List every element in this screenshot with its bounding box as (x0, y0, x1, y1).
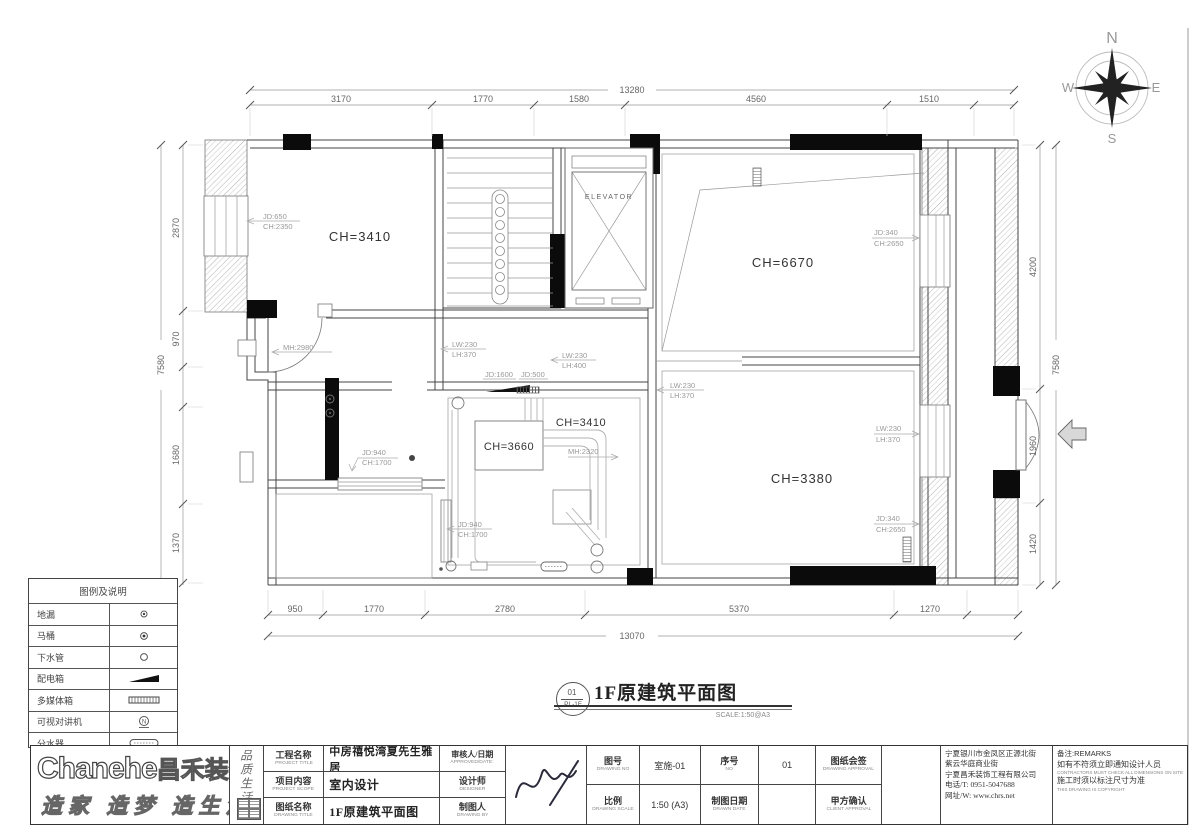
scale-label-en: DRAWING SCALE (592, 807, 633, 812)
legend-label: 多媒体箱 (29, 690, 110, 711)
seq-label-en: NO (726, 767, 733, 772)
title-rule (554, 705, 792, 707)
drain-pipe-icon (452, 397, 464, 409)
elevator-shaft: ELEVATOR (565, 148, 653, 308)
designer-signature (506, 755, 586, 815)
floor-drain-icon (409, 455, 415, 461)
signature-cell (506, 746, 587, 824)
scope-value: 室内设计 (329, 776, 379, 793)
approved-label-en: APPROVED/DATE: (451, 760, 494, 765)
legend-label: 地漏 (29, 604, 110, 625)
legend-row: 地漏 (29, 604, 177, 626)
drain-pipe-icon (591, 561, 603, 573)
power-box-icon (110, 669, 177, 690)
legend-panel: 图例及说明 地漏 马桶 下水管 配电箱 多媒体箱 可视对讲机 N 分水器 (28, 578, 178, 748)
dim-chain-bottom: 950 1770 2780 5370 1270 13070 (264, 604, 1022, 641)
dim: 3170 (331, 94, 351, 104)
window-toilet (338, 478, 422, 490)
project-label: 工程名称 (276, 751, 312, 761)
sheet-title: 01 PL-1F 1F原建筑平面图 SCALE:1:50@A3 (548, 676, 798, 722)
beam-note: LH:370 (876, 435, 900, 444)
wall-box (471, 562, 487, 570)
company-address1: 宁夏银川市金凤区正源北街 (945, 749, 1036, 759)
floor-drain-icon (439, 567, 443, 571)
drawing-title-value: 1F原建筑平面图 (329, 803, 418, 820)
remarks-title: 备注:REMARKS (1057, 749, 1111, 760)
remarks-line2: 施工时须以标注尺寸为准 (1057, 776, 1145, 786)
scope-label: 项目内容 (276, 777, 312, 787)
brand-slogan: 造家 造梦 造生活 (41, 790, 230, 820)
legend-row: 马桶 (29, 626, 177, 648)
dim: 2870 (171, 218, 181, 238)
dim: 1510 (919, 94, 939, 104)
company-info: 宁夏银川市金凤区正源北街 紫云华庭商业街 宁夏昌禾装饰工程有限公司 电话/T: … (941, 746, 1053, 824)
mh-note: MH:2320 (568, 447, 598, 456)
compass-icon: N S W E (1062, 30, 1161, 146)
window-note: JD:940 (458, 520, 482, 529)
dim: 1960 (1028, 436, 1038, 456)
brand-wordmark: Chanehe昌禾装饰 (37, 750, 230, 786)
window-note: CH:2650 (876, 525, 906, 534)
dim: 1270 (920, 604, 940, 614)
dim: 5370 (729, 604, 749, 614)
beam-note: LW:230 (562, 351, 587, 360)
project-value: 中房禧悦湾夏先生雅居 (329, 746, 438, 772)
window-right-top (920, 215, 950, 287)
legend-row: 配电箱 (29, 669, 177, 691)
dim-chain-top: 13280 3170 1770 1580 4560 1510 (246, 85, 1018, 109)
window-note: JD:940 (362, 448, 386, 457)
room-label: CH=6670 (752, 255, 814, 270)
compass-w-label: W (1062, 80, 1075, 95)
dim-chain-right: 4200 1960 1420 7580 (1028, 141, 1061, 589)
drawing-number-badge: 01 PL-1F (556, 682, 590, 716)
company-website: 网址/W: www.chrs.net (945, 791, 1015, 801)
legend-label: 可视对讲机 (29, 712, 110, 733)
date-value-empty (759, 785, 815, 824)
badge-number: 01 (561, 689, 583, 700)
drawing-title-label-en: DRAWING TITLE (274, 813, 313, 818)
media-box-icon (110, 690, 177, 711)
window-bath (441, 500, 451, 562)
dim-total: 7580 (156, 355, 166, 375)
staircase (447, 158, 553, 306)
remarks-line1: 如有不符须立即通知设计人员 (1057, 760, 1161, 770)
beam-note: LW:230 (876, 424, 901, 433)
beam-note: LH:370 (670, 391, 694, 400)
designer-label-en: DESIGNER (459, 787, 485, 792)
window-note: JD:340 (876, 514, 900, 523)
sheet-title-text: 1F原建筑平面图 (594, 678, 737, 705)
scale-label: 比例 (604, 797, 622, 807)
legend-row: 下水管 (29, 647, 177, 669)
seq-values-col: 01 (759, 746, 816, 824)
dim-total: 13280 (619, 85, 644, 95)
room-label: CH=3410 (556, 417, 606, 429)
room-label: CH=3410 (329, 229, 391, 244)
legend-row: 多媒体箱 (29, 690, 177, 712)
beam-note: LW:230 (452, 340, 477, 349)
company-name: 宁夏昌禾装饰工程有限公司 (945, 770, 1036, 780)
legend-label: 配电箱 (29, 669, 110, 690)
room-label: CH=3660 (484, 441, 534, 453)
compass-e-label: E (1152, 80, 1161, 95)
entry-arrow-icon (1058, 420, 1086, 448)
drafter-label-en: DRAWING BY (456, 813, 488, 818)
legend-title: 图例及说明 (29, 579, 177, 604)
dim: 2780 (495, 604, 515, 614)
company-logo: Chanehe昌禾装饰 造家 造梦 造生活 (31, 746, 230, 824)
dim: 1680 (171, 445, 181, 465)
legend-label: 马桶 (29, 626, 110, 647)
beam-note: LW:230 (670, 381, 695, 390)
window-note: JD:340 (874, 228, 898, 237)
dim: 4560 (746, 94, 766, 104)
drawing-sheet: ELEVATOR CH (0, 0, 1200, 833)
window-note: CH:1700 (362, 458, 392, 467)
dim-chain-left: 2870 970 1680 1370 7580 (156, 141, 187, 587)
dno-labels-col: 图号DRAWING NO 比例DRAWING SCALE (587, 746, 640, 824)
window-note: JD:650 (263, 212, 287, 221)
approval-blank-col (882, 746, 941, 824)
media-box-icon (753, 168, 761, 186)
remarks-line2-en: THIS DRAWING IS COPYRIGHT (1057, 787, 1125, 793)
seq-labels-col: 序号NO 制图日期DRAWN DATE (701, 746, 760, 824)
elevator-label: ELEVATOR (585, 194, 633, 201)
window-note: CH:1700 (458, 530, 488, 539)
compass-n-label: N (1106, 30, 1118, 47)
designer-label: 设计师 (459, 777, 486, 787)
title-rule (554, 709, 792, 710)
seq-value: 01 (782, 760, 792, 770)
dim-total: 7580 (1051, 355, 1061, 375)
side-strip: 品质生活 (230, 746, 264, 824)
side-motto: 品质生活 (238, 749, 255, 805)
compass-s-label: S (1108, 131, 1117, 146)
legend-label: 下水管 (29, 647, 110, 668)
svg-text:N: N (141, 719, 145, 725)
right-terrace-door (1016, 400, 1039, 470)
beam-note: LH:400 (562, 361, 586, 370)
scale-value: 1:50 (A3) (651, 800, 688, 810)
window-note: CH:2650 (874, 239, 904, 248)
approval-label-en: DRAWING APPROVAL (823, 767, 874, 772)
drawing-no-label-en: DRAWING NO (597, 767, 630, 772)
field-labels-col: 工程名称PROJECT TITLE 项目内容PROJECT SCOPE 图纸名称… (264, 746, 325, 824)
date-label: 制图日期 (711, 797, 747, 807)
jd-note: JD:1600 (485, 370, 513, 379)
company-address2: 紫云华庭商业街 (945, 759, 998, 769)
sheet-scale: SCALE:1:50@A3 (716, 712, 770, 719)
sign-labels-col: 审核人/日期APPROVED/DATE: 设计师DESIGNER 制图人DRAW… (440, 746, 506, 824)
client-label-en: CLIENT APPROVAL (826, 807, 871, 812)
drain-pipe-icon (446, 561, 456, 571)
drain-pipe-icon (110, 647, 177, 668)
scope-label-en: PROJECT SCOPE (273, 787, 315, 792)
dim: 970 (171, 331, 181, 346)
window-right-bottom (920, 405, 950, 477)
approval-labels-col: 图纸会签DRAWING APPROVAL 甲方确认CLIENT APPROVAL (816, 746, 882, 824)
window-left (204, 196, 248, 256)
dim: 1770 (473, 94, 493, 104)
drain-pipe-icon (591, 544, 603, 556)
field-values-col: 中房禧悦湾夏先生雅居 室内设计 1F原建筑平面图 (324, 746, 439, 824)
approval-stamp-icon (237, 798, 261, 820)
dno-values-col: 室施-01 1:50 (A3) (640, 746, 701, 824)
legend-row: 可视对讲机 N (29, 712, 177, 734)
company-phone: 电话/T: 0951-5047688 (945, 780, 1015, 790)
floor-drain-icon (110, 604, 177, 625)
door-note: MH:2980 (283, 343, 313, 352)
client-label: 甲方确认 (831, 797, 867, 807)
dim: 1580 (569, 94, 589, 104)
dim: 950 (287, 604, 302, 614)
dim: 1770 (364, 604, 384, 614)
project-label-en: PROJECT TITLE (275, 761, 313, 766)
media-box-icon (517, 387, 539, 393)
date-label-en: DRAWN DATE (713, 807, 746, 812)
room-label: CH=3380 (771, 471, 833, 486)
dim: 4200 (1028, 257, 1038, 277)
toilet-icon (110, 626, 177, 647)
beam-note: LH:370 (452, 350, 476, 359)
window-note: CH:2350 (263, 222, 293, 231)
title-block: Chanehe昌禾装饰 造家 造梦 造生活 品质生活 工程名称PROJECT T… (30, 745, 1188, 825)
dim: 1370 (171, 533, 181, 553)
media-box-icon (903, 537, 911, 562)
remarks-cell: 备注:REMARKS 如有不符须立即通知设计人员 CONTRACTORS MUS… (1053, 746, 1187, 824)
dim: 1420 (1028, 534, 1038, 554)
dim-total: 13070 (619, 631, 644, 641)
drawing-no-value: 室施-01 (654, 759, 685, 772)
jd-note: JD:500 (521, 370, 545, 379)
video-intercom-icon: N (110, 712, 177, 733)
